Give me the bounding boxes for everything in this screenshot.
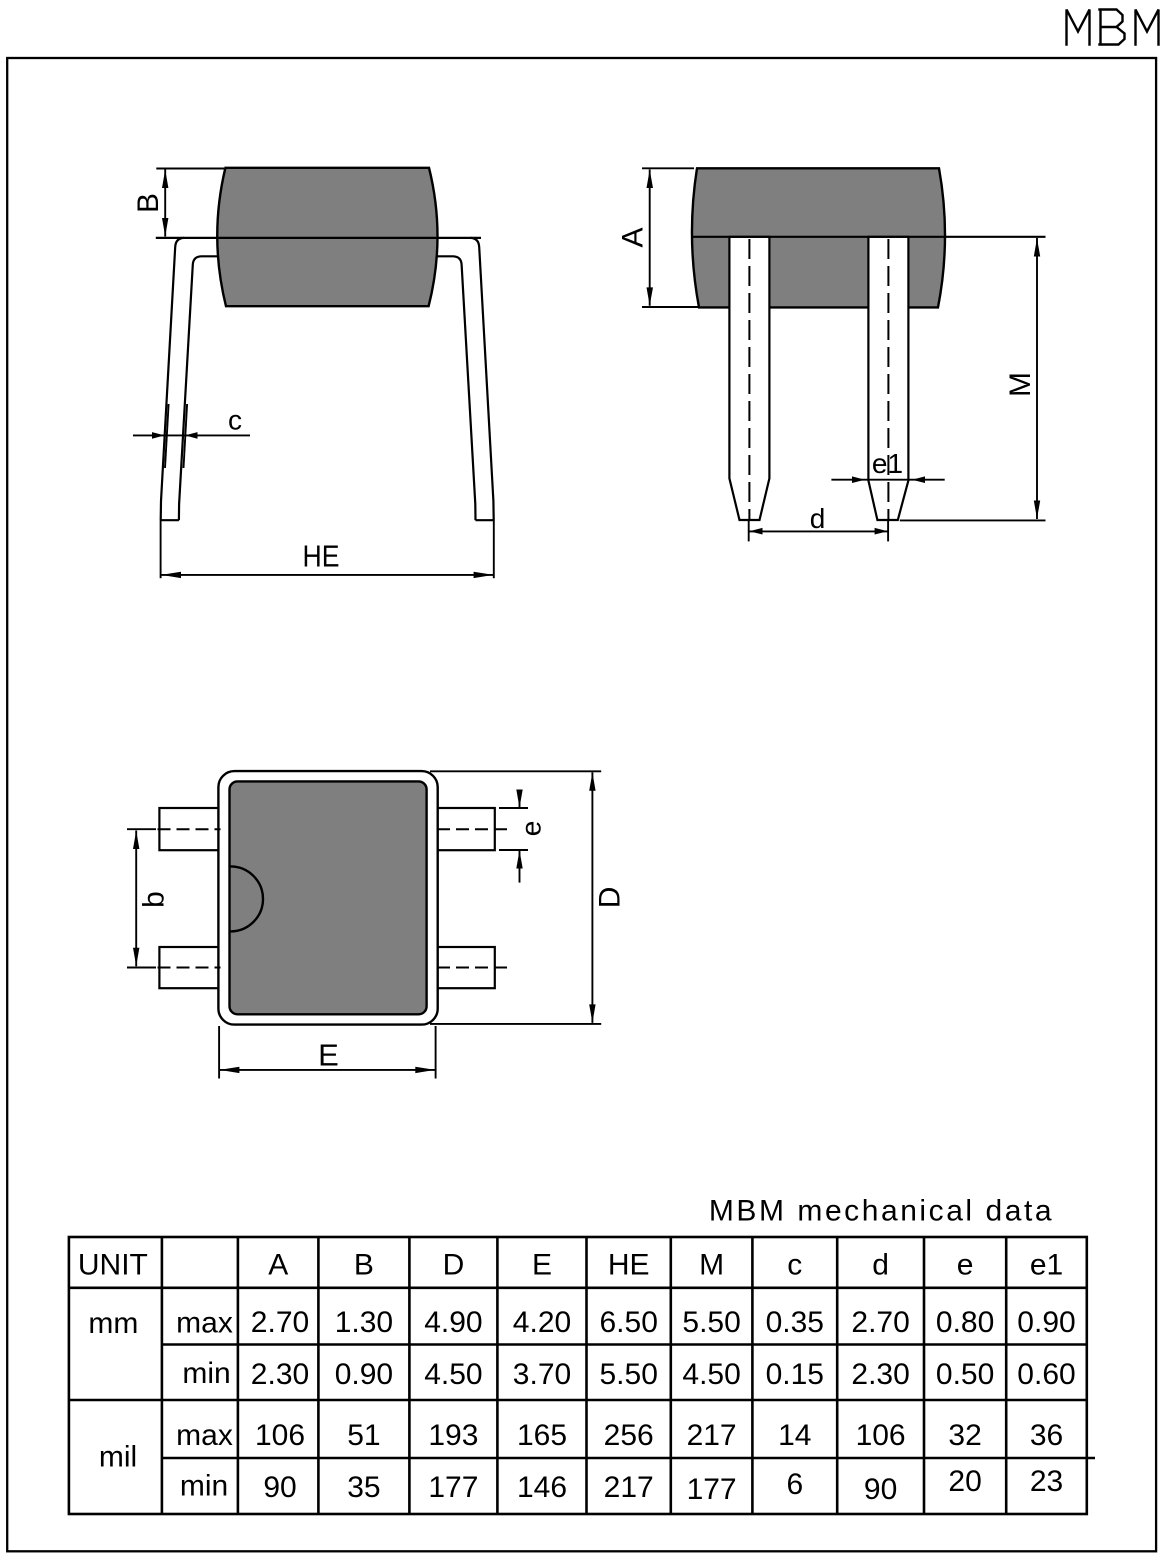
svg-text:min: min	[182, 1357, 230, 1390]
svg-text:e: e	[957, 1249, 974, 1282]
svg-text:14: 14	[778, 1419, 811, 1452]
svg-text:e1: e1	[1030, 1249, 1063, 1282]
svg-text:0.90: 0.90	[1017, 1306, 1075, 1339]
svg-text:MBM mechanical data: MBM mechanical data	[709, 1195, 1054, 1228]
svg-text:0.50: 0.50	[936, 1358, 994, 1391]
svg-text:0.90: 0.90	[335, 1358, 393, 1391]
svg-text:c: c	[228, 405, 242, 436]
svg-text:4.90: 4.90	[424, 1306, 482, 1339]
svg-text:165: 165	[517, 1419, 567, 1452]
svg-text:0.80: 0.80	[936, 1306, 994, 1339]
svg-text:106: 106	[856, 1419, 906, 1452]
svg-text:max: max	[176, 1307, 233, 1340]
svg-text:4.50: 4.50	[424, 1358, 482, 1391]
svg-text:d: d	[872, 1249, 889, 1282]
svg-text:d: d	[810, 503, 826, 534]
svg-text:6.50: 6.50	[600, 1306, 658, 1339]
svg-text:193: 193	[428, 1419, 478, 1452]
svg-text:0.60: 0.60	[1017, 1358, 1075, 1391]
svg-text:M: M	[699, 1249, 724, 1282]
svg-text:20: 20	[948, 1465, 981, 1498]
svg-text:B: B	[132, 193, 165, 213]
svg-text:M: M	[1004, 372, 1037, 397]
svg-text:b: b	[138, 891, 171, 908]
svg-text:6: 6	[786, 1468, 803, 1501]
svg-text:D: D	[594, 887, 627, 909]
svg-text:5.50: 5.50	[600, 1358, 658, 1391]
svg-text:177: 177	[428, 1471, 478, 1504]
svg-text:e1: e1	[872, 448, 903, 479]
svg-text:max: max	[176, 1419, 233, 1452]
svg-text:A: A	[617, 227, 650, 247]
svg-text:B: B	[354, 1249, 374, 1282]
svg-text:23: 23	[1030, 1465, 1063, 1498]
svg-text:106: 106	[255, 1419, 305, 1452]
svg-text:32: 32	[948, 1419, 981, 1452]
svg-text:256: 256	[604, 1419, 654, 1452]
svg-text:E: E	[318, 1038, 339, 1073]
svg-text:1.30: 1.30	[335, 1306, 393, 1339]
svg-text:2.30: 2.30	[251, 1358, 309, 1391]
svg-text:0.35: 0.35	[766, 1306, 824, 1339]
svg-text:HE: HE	[608, 1249, 650, 1282]
svg-text:c: c	[787, 1249, 802, 1282]
svg-text:D: D	[443, 1249, 465, 1282]
svg-text:2.70: 2.70	[851, 1306, 909, 1339]
svg-text:A: A	[268, 1249, 288, 1282]
svg-text:5.50: 5.50	[682, 1306, 740, 1339]
svg-text:E: E	[532, 1249, 552, 1282]
svg-text:0.15: 0.15	[766, 1358, 824, 1391]
svg-text:4.50: 4.50	[682, 1358, 740, 1391]
svg-text:4.20: 4.20	[513, 1306, 571, 1339]
svg-text:min: min	[180, 1470, 228, 1503]
svg-text:e: e	[516, 821, 547, 837]
svg-text:3.70: 3.70	[513, 1358, 571, 1391]
svg-text:90: 90	[864, 1473, 897, 1506]
svg-text:36: 36	[1030, 1419, 1063, 1452]
svg-text:51: 51	[347, 1419, 380, 1452]
svg-text:177: 177	[687, 1473, 737, 1506]
svg-text:2.70: 2.70	[251, 1306, 309, 1339]
svg-text:mm: mm	[88, 1307, 138, 1340]
svg-text:217: 217	[687, 1419, 737, 1452]
svg-text:146: 146	[517, 1471, 567, 1504]
svg-text:35: 35	[347, 1471, 380, 1504]
svg-text:90: 90	[263, 1471, 296, 1504]
svg-text:UNIT: UNIT	[78, 1249, 148, 1282]
svg-text:2.30: 2.30	[851, 1358, 909, 1391]
svg-text:mil: mil	[99, 1440, 137, 1473]
svg-text:HE: HE	[303, 539, 340, 574]
svg-text:217: 217	[604, 1471, 654, 1504]
